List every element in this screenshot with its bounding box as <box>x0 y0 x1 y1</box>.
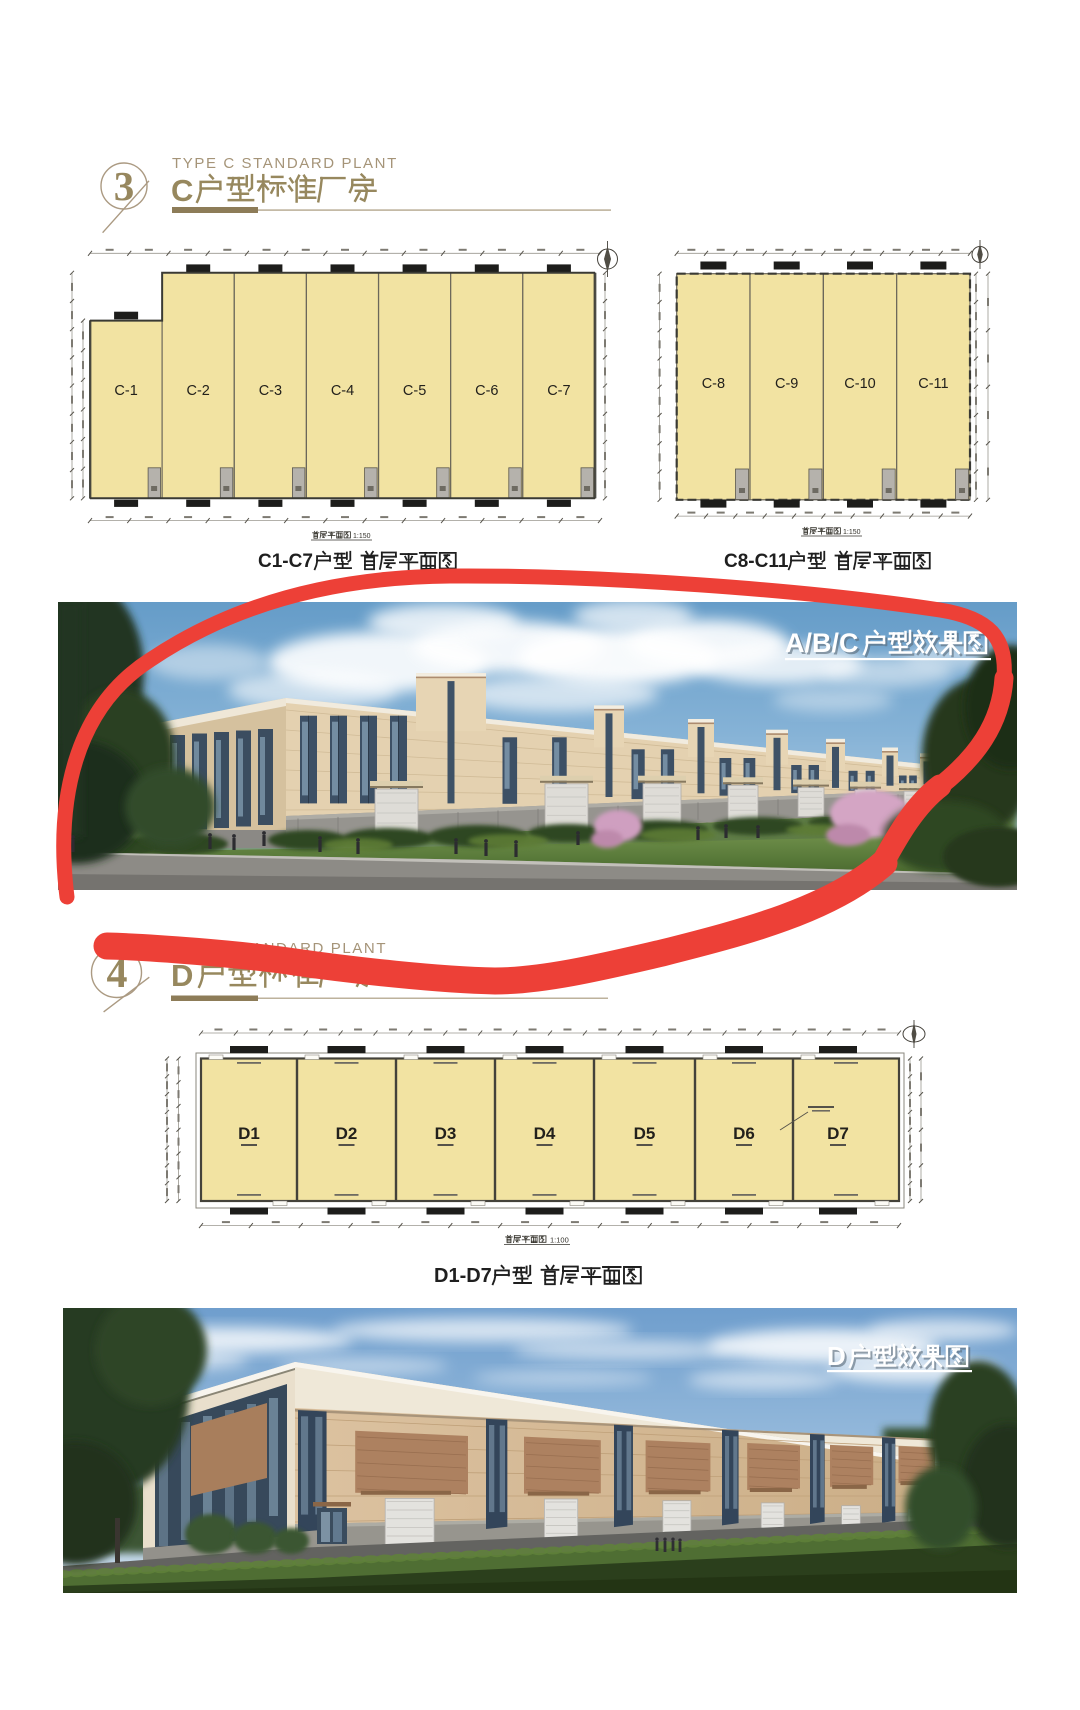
svg-text:TYPE C STANDARD PLANT: TYPE C STANDARD PLANT <box>172 155 398 172</box>
svg-text:C: C <box>171 173 193 208</box>
svg-text:D1-D7: D1-D7 <box>434 1265 492 1287</box>
svg-text:C-7: C-7 <box>547 383 570 399</box>
svg-text:C-3: C-3 <box>259 383 282 399</box>
svg-text:C-11: C-11 <box>918 376 948 392</box>
svg-text:C-6: C-6 <box>475 383 498 399</box>
svg-text:C-5: C-5 <box>403 383 426 399</box>
svg-text:C-2: C-2 <box>187 383 210 399</box>
svg-text:C-9: C-9 <box>775 376 798 392</box>
svg-text:D2: D2 <box>336 1124 358 1143</box>
svg-text:D4: D4 <box>534 1124 556 1143</box>
svg-text:1:150: 1:150 <box>353 533 371 540</box>
svg-text:3: 3 <box>114 163 135 209</box>
svg-text:D6: D6 <box>733 1124 755 1143</box>
svg-text:D3: D3 <box>435 1124 457 1143</box>
svg-text:C-1: C-1 <box>114 383 137 399</box>
svg-text:D: D <box>827 1341 846 1371</box>
svg-text:C-10: C-10 <box>844 376 875 392</box>
svg-text:C-4: C-4 <box>331 383 354 399</box>
svg-text:1:150: 1:150 <box>843 529 861 536</box>
svg-text:D1: D1 <box>238 1124 260 1143</box>
svg-text:D5: D5 <box>634 1124 656 1143</box>
svg-text:D7: D7 <box>827 1124 849 1143</box>
svg-text:C-8: C-8 <box>702 376 725 392</box>
svg-text:1:100: 1:100 <box>550 1236 569 1245</box>
